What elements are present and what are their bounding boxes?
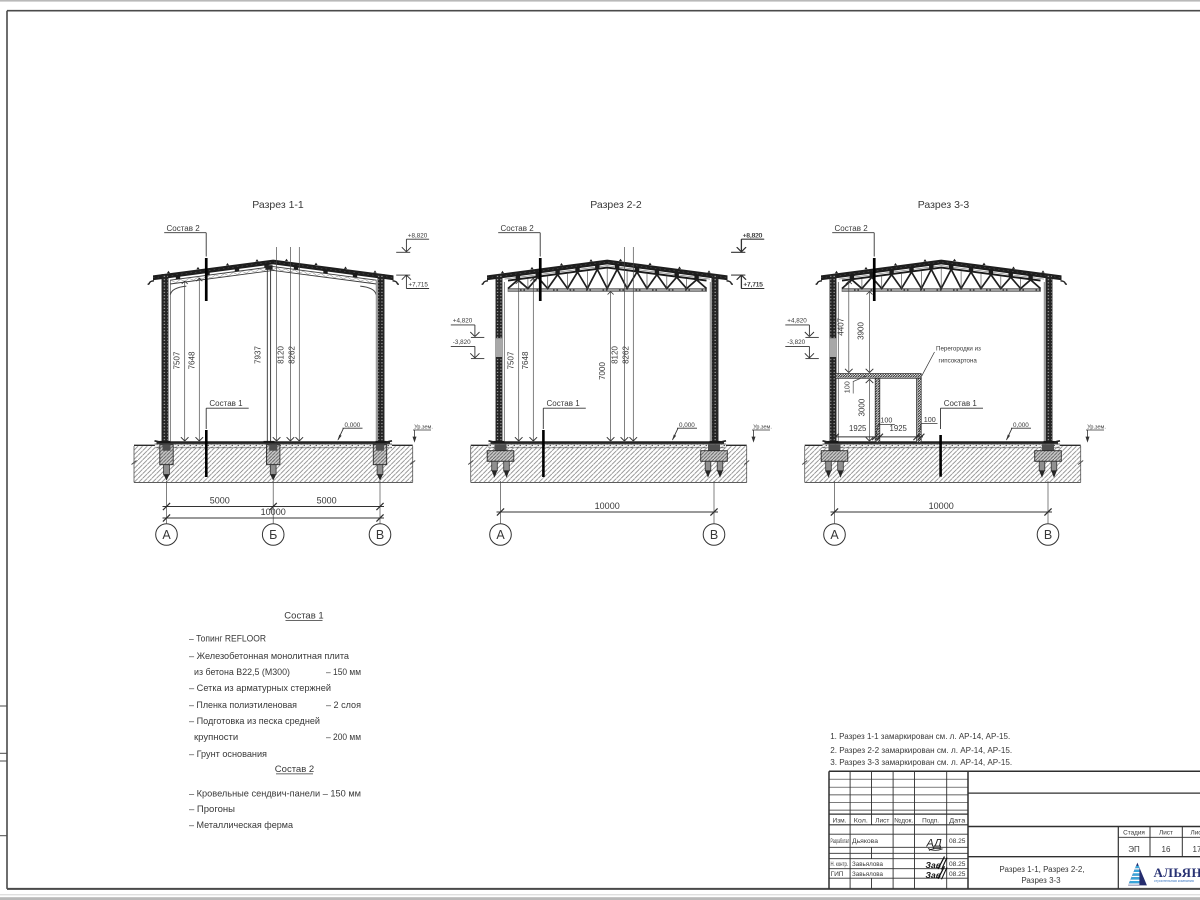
svg-text:АЛЬЯНС: АЛЬЯНС: [1154, 865, 1200, 880]
svg-text:8262: 8262: [288, 346, 297, 364]
svg-text:Лист: Лист: [875, 817, 889, 824]
svg-text:16: 16: [1162, 845, 1171, 854]
svg-text:В: В: [376, 528, 384, 542]
svg-text:08.25: 08.25: [949, 838, 966, 845]
svg-text:1925: 1925: [849, 424, 867, 433]
svg-text:из бетона В22,5 (М300): из бетона В22,5 (М300): [194, 667, 290, 678]
svg-text:гипсокартона: гипсокартона: [939, 358, 978, 365]
svg-text:№док.: №док.: [894, 817, 913, 824]
svg-text:Состав 2: Состав 2: [167, 224, 201, 233]
svg-text:Состав 2: Состав 2: [835, 224, 869, 233]
svg-text:Разрез 3-3: Разрез 3-3: [1021, 876, 1061, 885]
svg-text:ГИП: ГИП: [831, 871, 844, 878]
svg-text:ЭП: ЭП: [1128, 845, 1140, 854]
svg-text:3. Разрез 3-3 замаркирован см.: 3. Разрез 3-3 замаркирован см. л. АР-14,…: [830, 758, 1012, 767]
svg-text:Состав 1: Состав 1: [284, 611, 323, 622]
svg-text:– Прогоны: – Прогоны: [189, 804, 235, 815]
svg-text:АД: АД: [926, 838, 942, 850]
svg-text:Состав 1: Состав 1: [209, 399, 243, 408]
svg-text:А: А: [830, 528, 839, 542]
svg-text:5000: 5000: [210, 496, 230, 506]
svg-text:Н. контр.: Н. контр.: [831, 861, 849, 868]
svg-text:Разрез 1-1, Разрез 2-2,: Разрез 1-1, Разрез 2-2,: [999, 865, 1084, 874]
svg-text:100: 100: [842, 381, 851, 393]
svg-text:строительная компания: строительная компания: [1154, 879, 1194, 883]
svg-text:Лист: Лист: [1159, 830, 1173, 837]
svg-text:– Подготовка из песка средней: – Подготовка из песка средней: [189, 716, 320, 727]
svg-text:7507: 7507: [173, 351, 182, 369]
svg-text:+8,820: +8,820: [743, 232, 763, 239]
svg-text:5000: 5000: [317, 496, 337, 506]
svg-text:Стадия: Стадия: [1123, 830, 1145, 837]
svg-text:Б: Б: [269, 528, 277, 542]
svg-text:В: В: [710, 528, 718, 542]
svg-text:100: 100: [924, 415, 936, 424]
svg-text:А: А: [496, 528, 505, 542]
svg-text:Разрез 1-1: Разрез 1-1: [252, 199, 304, 211]
svg-text:-3,820: -3,820: [787, 339, 805, 346]
svg-text:1925: 1925: [890, 424, 908, 433]
svg-text:+7,715: +7,715: [408, 282, 428, 289]
svg-text:Изм.: Изм.: [833, 817, 847, 824]
svg-text:– Пленка полиэтиленовая: – Пленка полиэтиленовая: [189, 700, 297, 711]
svg-text:08.25: 08.25: [949, 871, 966, 878]
svg-text:+4,820: +4,820: [453, 318, 473, 325]
svg-text:– Металлическая ферма: – Металлическая ферма: [189, 820, 294, 831]
svg-text:1. Разрез 1-1 замаркирован см.: 1. Разрез 1-1 замаркирован см. л. АР-14,…: [830, 732, 1010, 741]
svg-text:Состав 2: Состав 2: [275, 764, 314, 775]
svg-text:8120: 8120: [277, 346, 286, 364]
svg-text:+4,820: +4,820: [787, 318, 807, 325]
svg-text:2. Разрез 2-2 замаркирован см.: 2. Разрез 2-2 замаркирован см. л. АР-14,…: [830, 746, 1012, 755]
svg-text:– 150 мм: – 150 мм: [326, 667, 361, 678]
svg-text:+8,820: +8,820: [408, 232, 428, 239]
svg-text:7000: 7000: [598, 362, 607, 380]
svg-text:Состав 1: Состав 1: [547, 399, 581, 408]
svg-text:– 200 мм: – 200 мм: [326, 732, 361, 743]
svg-text:– Сетка из арматурных стержне: – Сетка из арматурных стержней: [189, 683, 331, 694]
svg-text:100: 100: [880, 416, 892, 425]
svg-text:В: В: [1044, 528, 1052, 542]
svg-text:3000: 3000: [857, 398, 866, 416]
svg-text:+7,715: +7,715: [744, 282, 764, 289]
svg-text:Кол.: Кол.: [854, 817, 868, 824]
svg-text:Состав 1: Состав 1: [944, 399, 978, 408]
svg-text:10000: 10000: [929, 501, 954, 511]
svg-text:Перегородки из: Перегородки из: [936, 345, 981, 352]
svg-text:Лис: Лис: [1191, 830, 1200, 837]
svg-text:– 2 слоя: – 2 слоя: [326, 700, 361, 711]
svg-text:Разрез 2-2: Разрез 2-2: [590, 199, 642, 211]
svg-text:4407: 4407: [837, 317, 846, 335]
svg-text:Состав 2: Состав 2: [501, 224, 535, 233]
svg-text:8120: 8120: [611, 346, 620, 364]
svg-text:– Железобетонная монолитная: – Железобетонная монолитная плита: [189, 651, 350, 662]
svg-text:7507: 7507: [507, 351, 516, 369]
svg-text:А: А: [162, 528, 171, 542]
svg-text:Дьякова: Дьякова: [852, 838, 878, 845]
svg-text:3900: 3900: [857, 322, 866, 340]
svg-text:10000: 10000: [595, 501, 620, 511]
svg-text:Подп.: Подп.: [922, 817, 939, 824]
svg-text:08.25: 08.25: [949, 861, 966, 868]
svg-text:– Кровельные сендвич-панели: – Кровельные сендвич-панели – 150 мм: [189, 788, 361, 799]
svg-text:10000: 10000: [261, 507, 286, 517]
svg-text:17: 17: [1193, 845, 1200, 854]
svg-text:7648: 7648: [521, 351, 530, 369]
svg-text:8262: 8262: [621, 346, 630, 364]
svg-text:7937: 7937: [254, 346, 263, 364]
svg-text:7648: 7648: [187, 351, 196, 369]
svg-text:-3,820: -3,820: [453, 339, 471, 346]
svg-text:крупности: крупности: [194, 732, 238, 743]
svg-text:Завьялова: Завьялова: [852, 861, 883, 868]
svg-text:– Топинг REFLOOR: – Топинг REFLOOR: [189, 634, 266, 645]
svg-text:Разработал: Разработал: [831, 837, 850, 845]
svg-text:– Грунт основания: – Грунт основания: [189, 749, 267, 760]
svg-text:Завьялова: Завьялова: [852, 871, 883, 878]
svg-text:Разрез 3-3: Разрез 3-3: [918, 199, 970, 211]
svg-text:Дата: Дата: [949, 817, 965, 824]
